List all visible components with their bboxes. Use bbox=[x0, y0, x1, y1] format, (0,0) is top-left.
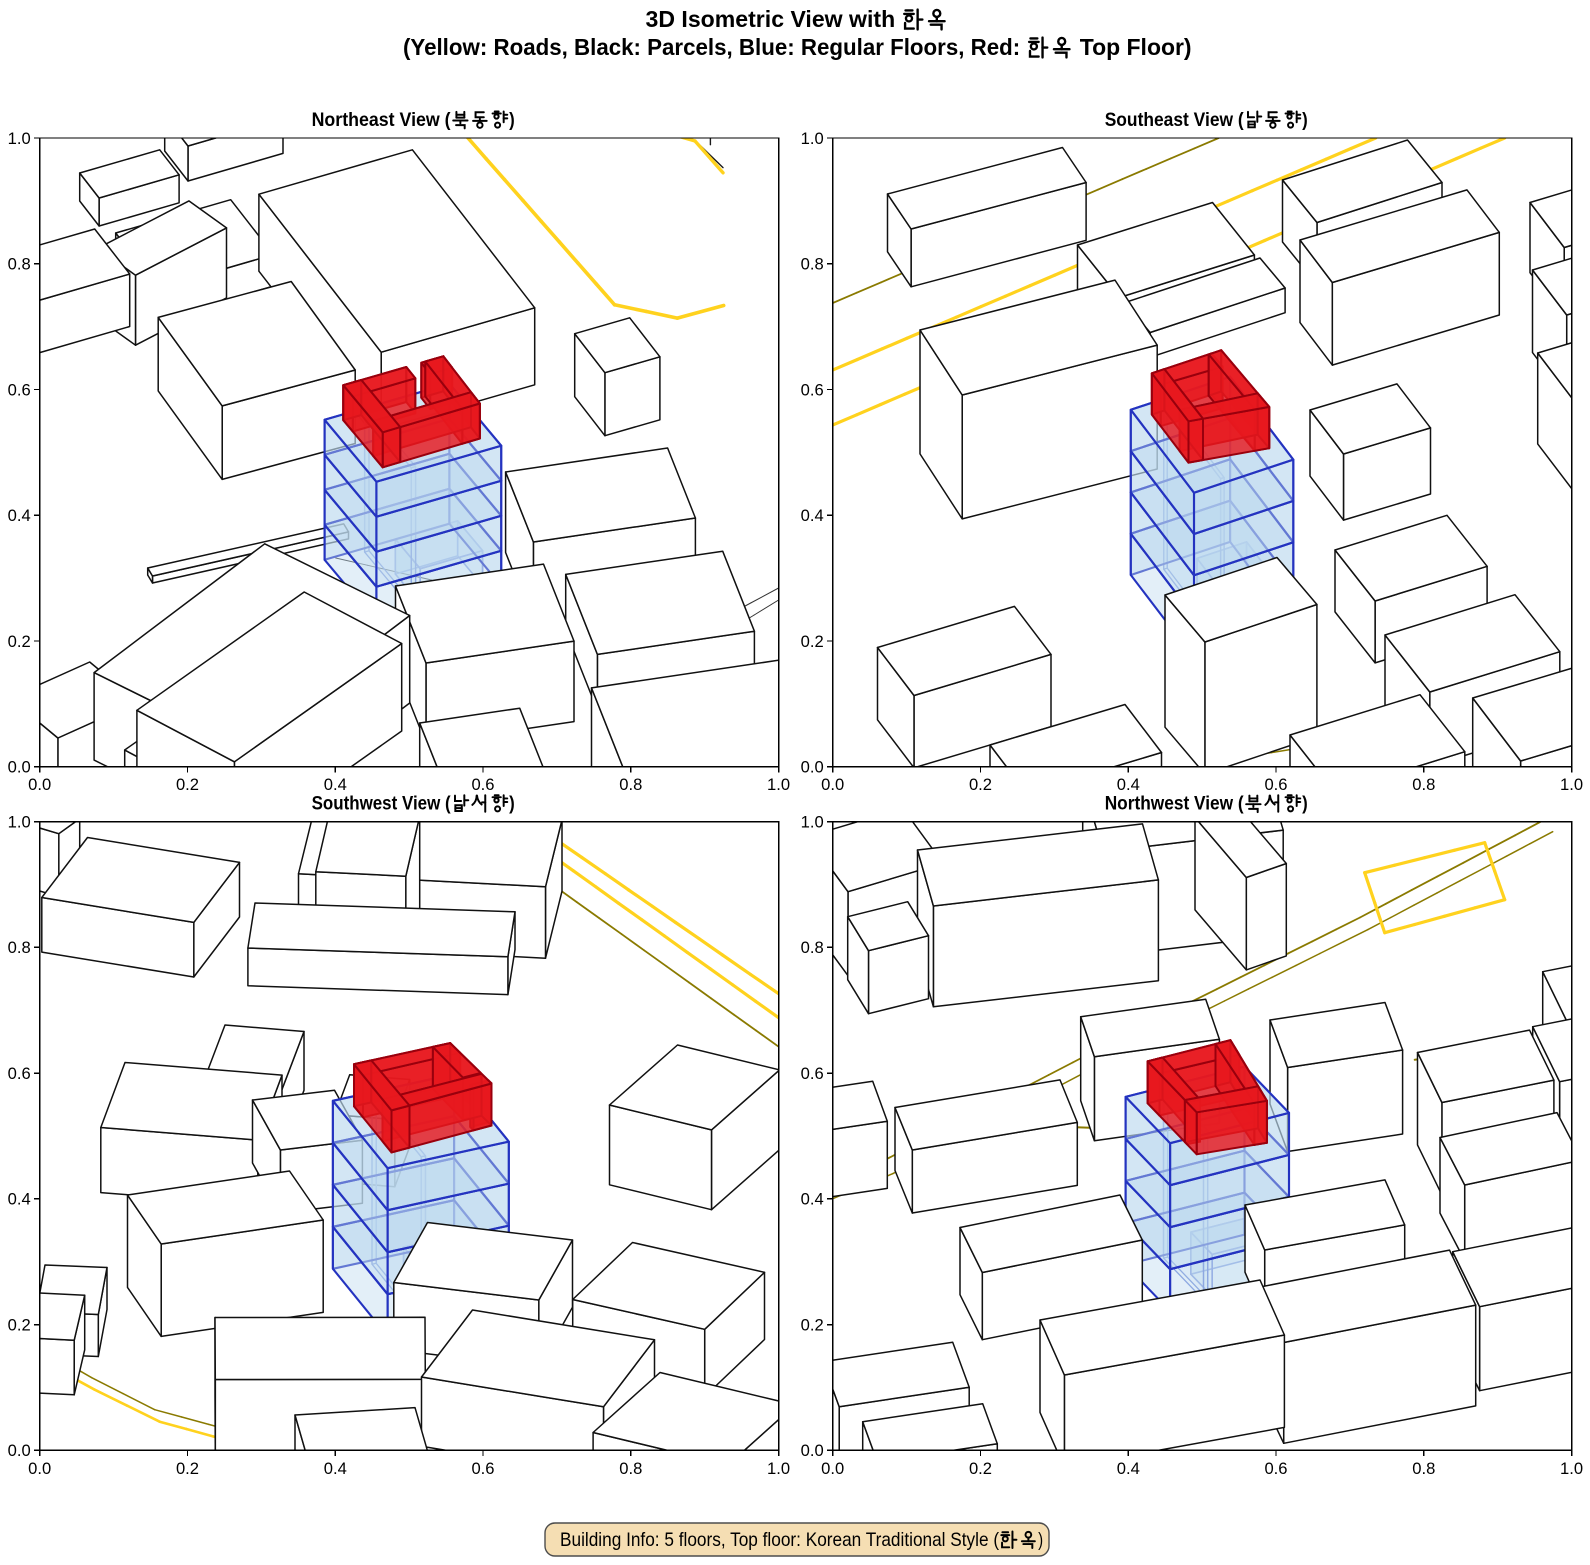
svg-text:0.4: 0.4 bbox=[1117, 1459, 1140, 1478]
svg-text:0.0: 0.0 bbox=[821, 775, 844, 794]
svg-text:1.0: 1.0 bbox=[1560, 1459, 1583, 1478]
svg-text:0.8: 0.8 bbox=[1412, 1459, 1435, 1478]
svg-text:): ) bbox=[509, 793, 515, 815]
svg-text:): ) bbox=[1302, 109, 1308, 131]
svg-text:0.2: 0.2 bbox=[8, 1316, 31, 1335]
svg-text:1.0: 1.0 bbox=[767, 775, 790, 794]
svg-text:Northeast View (: Northeast View ( bbox=[312, 109, 451, 131]
svg-text:0.2: 0.2 bbox=[801, 632, 824, 651]
svg-text:0.4: 0.4 bbox=[1117, 775, 1140, 794]
svg-text:0.4: 0.4 bbox=[8, 1190, 31, 1209]
svg-text:0.6: 0.6 bbox=[801, 380, 824, 399]
svg-text:0.0: 0.0 bbox=[821, 1459, 844, 1478]
svg-text:0.0: 0.0 bbox=[28, 1459, 51, 1478]
svg-text:0.0: 0.0 bbox=[801, 1441, 824, 1460]
svg-text:Top Floor): Top Floor) bbox=[1073, 34, 1191, 60]
svg-text:0.4: 0.4 bbox=[324, 1459, 347, 1478]
svg-text:1.0: 1.0 bbox=[1560, 775, 1583, 794]
svg-text:0.2: 0.2 bbox=[969, 775, 992, 794]
svg-text:0.6: 0.6 bbox=[471, 1459, 494, 1478]
svg-text:): ) bbox=[509, 109, 515, 131]
svg-text:0.2: 0.2 bbox=[176, 1459, 199, 1478]
svg-text:0.8: 0.8 bbox=[801, 938, 824, 957]
svg-text:0.6: 0.6 bbox=[1264, 1459, 1287, 1478]
svg-text:0.2: 0.2 bbox=[801, 1316, 824, 1335]
svg-text:0.6: 0.6 bbox=[8, 1064, 31, 1083]
svg-text:Southwest View (: Southwest View ( bbox=[312, 793, 451, 815]
svg-text:0.0: 0.0 bbox=[8, 758, 31, 777]
svg-text:0.4: 0.4 bbox=[801, 506, 824, 525]
svg-text:1.0: 1.0 bbox=[8, 129, 31, 148]
svg-text:1.0: 1.0 bbox=[801, 129, 824, 148]
svg-text:0.2: 0.2 bbox=[176, 775, 199, 794]
svg-text:0.8: 0.8 bbox=[619, 775, 642, 794]
svg-text:0.8: 0.8 bbox=[619, 1459, 642, 1478]
svg-text:0.6: 0.6 bbox=[8, 380, 31, 399]
svg-text:1.0: 1.0 bbox=[8, 813, 31, 832]
svg-text:0.6: 0.6 bbox=[801, 1064, 824, 1083]
svg-text:Building Info: 5 floors, Top f: Building Info: 5 floors, Top floor: Kore… bbox=[560, 1529, 1000, 1551]
svg-text:0.6: 0.6 bbox=[1264, 775, 1287, 794]
svg-text:0.8: 0.8 bbox=[801, 255, 824, 274]
svg-text:0.0: 0.0 bbox=[8, 1441, 31, 1460]
svg-text:Southeast View (: Southeast View ( bbox=[1105, 109, 1244, 131]
svg-text:1.0: 1.0 bbox=[801, 813, 824, 832]
svg-text:3D Isometric View with: 3D Isometric View with bbox=[646, 6, 902, 32]
svg-text:0.8: 0.8 bbox=[8, 938, 31, 957]
svg-text:0.0: 0.0 bbox=[28, 775, 51, 794]
svg-text:0.2: 0.2 bbox=[8, 632, 31, 651]
svg-text:(Yellow: Roads, Black: Parcels: (Yellow: Roads, Black: Parcels, Blue: Re… bbox=[403, 34, 1026, 60]
svg-text:0.0: 0.0 bbox=[801, 758, 824, 777]
svg-text:0.6: 0.6 bbox=[471, 775, 494, 794]
svg-text:0.4: 0.4 bbox=[801, 1190, 824, 1209]
svg-text:1.0: 1.0 bbox=[767, 1459, 790, 1478]
svg-text:0.4: 0.4 bbox=[324, 775, 347, 794]
svg-text:): ) bbox=[1302, 793, 1308, 815]
svg-text:0.8: 0.8 bbox=[1412, 775, 1435, 794]
svg-text:0.2: 0.2 bbox=[969, 1459, 992, 1478]
svg-text:): ) bbox=[1038, 1529, 1043, 1551]
svg-text:0.8: 0.8 bbox=[8, 255, 31, 274]
svg-text:Northwest View (: Northwest View ( bbox=[1105, 793, 1244, 815]
svg-text:0.4: 0.4 bbox=[8, 506, 31, 525]
